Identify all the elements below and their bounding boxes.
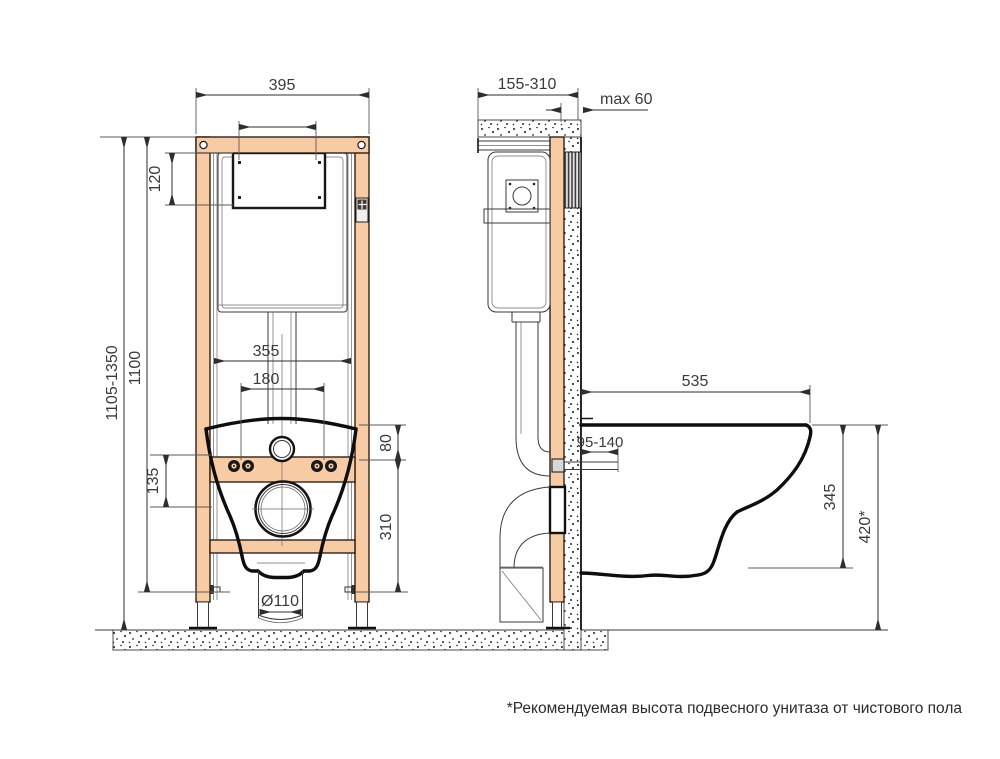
foot-side [553, 602, 562, 628]
drain-elbow-outer [500, 487, 550, 568]
dim-label-95-140: 95-140 [577, 434, 624, 451]
dim-bowl-top-height: 420* [857, 425, 878, 630]
cistern-front [218, 153, 347, 424]
label-sticker [356, 198, 368, 222]
flush-plate-opening [233, 153, 325, 208]
footnote-text: *Рекомендуемая высота подвесного унитаза… [507, 700, 963, 717]
bowl-outlet-socket [550, 487, 565, 533]
bolt [325, 460, 337, 472]
bowl-bottom-edge [242, 556, 320, 578]
floor-section [95, 630, 888, 650]
cistern-side [484, 152, 550, 476]
dim-label-max60: max 60 [600, 91, 653, 108]
frame-crossbar-top [196, 137, 369, 153]
dim-depth-range: 155-310 [478, 76, 578, 120]
drain-elbow-inner [514, 533, 550, 568]
wall-bracket [478, 138, 550, 153]
dim-label-345: 345 [822, 484, 839, 511]
crossbar-hole-left [200, 141, 207, 148]
dim-label-420: 420* [857, 511, 874, 544]
installation-drawing: 395 120 1105-1350 1100 355 180 [0, 0, 1000, 759]
dim-label-535: 535 [682, 373, 709, 390]
cistern-neck [512, 312, 540, 322]
bowl-front-curve [737, 425, 811, 512]
frame-rail-left [196, 137, 210, 602]
foot-lock-screw-right [345, 585, 355, 594]
dim-label-135: 135 [145, 468, 162, 495]
opening-mark [238, 161, 241, 164]
technical-drawing-page: 395 120 1105-1350 1100 355 180 [0, 0, 1000, 759]
outlet-pipe-bottom-arc [259, 615, 303, 620]
dim-label-1100: 1100 [127, 351, 144, 386]
bolt [242, 460, 254, 472]
opening-mark [318, 161, 321, 164]
dim-label-395: 395 [269, 77, 296, 94]
dim-label-355: 355 [253, 343, 280, 360]
side-view: 155-310 max 60 535 95-140 345 420* [478, 76, 888, 650]
opening-mark [318, 196, 321, 199]
floor-hatch-band [113, 630, 608, 650]
crossbar-hole-right [358, 141, 365, 148]
bowl-right-edge [320, 429, 356, 556]
opening-mark [238, 196, 241, 199]
dim-drain-diameter: Ø110 [260, 593, 302, 612]
plate-screw [533, 183, 536, 186]
cistern-side-outline [488, 152, 550, 312]
bowl-left-edge [206, 429, 242, 556]
bolt [311, 460, 323, 472]
dim-inner-width: 355 [214, 343, 351, 361]
front-view: 395 120 1105-1350 1100 355 180 [100, 77, 408, 630]
drain-diagonal [502, 571, 541, 620]
dim-total-height-range: 1105-1350 [100, 137, 196, 630]
dim-label-310: 310 [378, 514, 395, 541]
dim-label-120: 120 [147, 166, 164, 193]
flush-elbow-outer [516, 437, 550, 476]
wall-column-section [564, 137, 581, 650]
frame-crossbar-lower [210, 540, 355, 553]
bowl-under-curve [698, 512, 737, 575]
dim-stud-protrusion: 95-140 [577, 434, 624, 452]
dim-label-1105-1350: 1105-1350 [104, 345, 121, 420]
flush-plate-side [564, 152, 581, 208]
outlet-pipe-bottom-arc2 [259, 618, 303, 623]
foot-right [357, 602, 368, 628]
dim-bowl-depth: 535 [581, 373, 810, 423]
bowl-bottom-line [581, 573, 698, 576]
dim-finish-thickness: max 60 [546, 91, 653, 122]
dim-label-80: 80 [378, 434, 395, 452]
dim-label-180: 180 [253, 371, 280, 388]
foot-left [198, 602, 209, 628]
stud-nut [552, 459, 564, 472]
bowl-top-edge [206, 419, 356, 430]
dim-front-width: 395 [196, 77, 369, 134]
bolt [228, 460, 240, 472]
foot-lock-screw-left [211, 585, 221, 594]
flush-elbow-inner [538, 437, 550, 452]
dim-label-d110: Ø110 [261, 593, 299, 610]
plate-screw [509, 183, 512, 186]
wall-lintel-section [478, 120, 581, 137]
dim-label-155-310: 155-310 [498, 76, 557, 93]
